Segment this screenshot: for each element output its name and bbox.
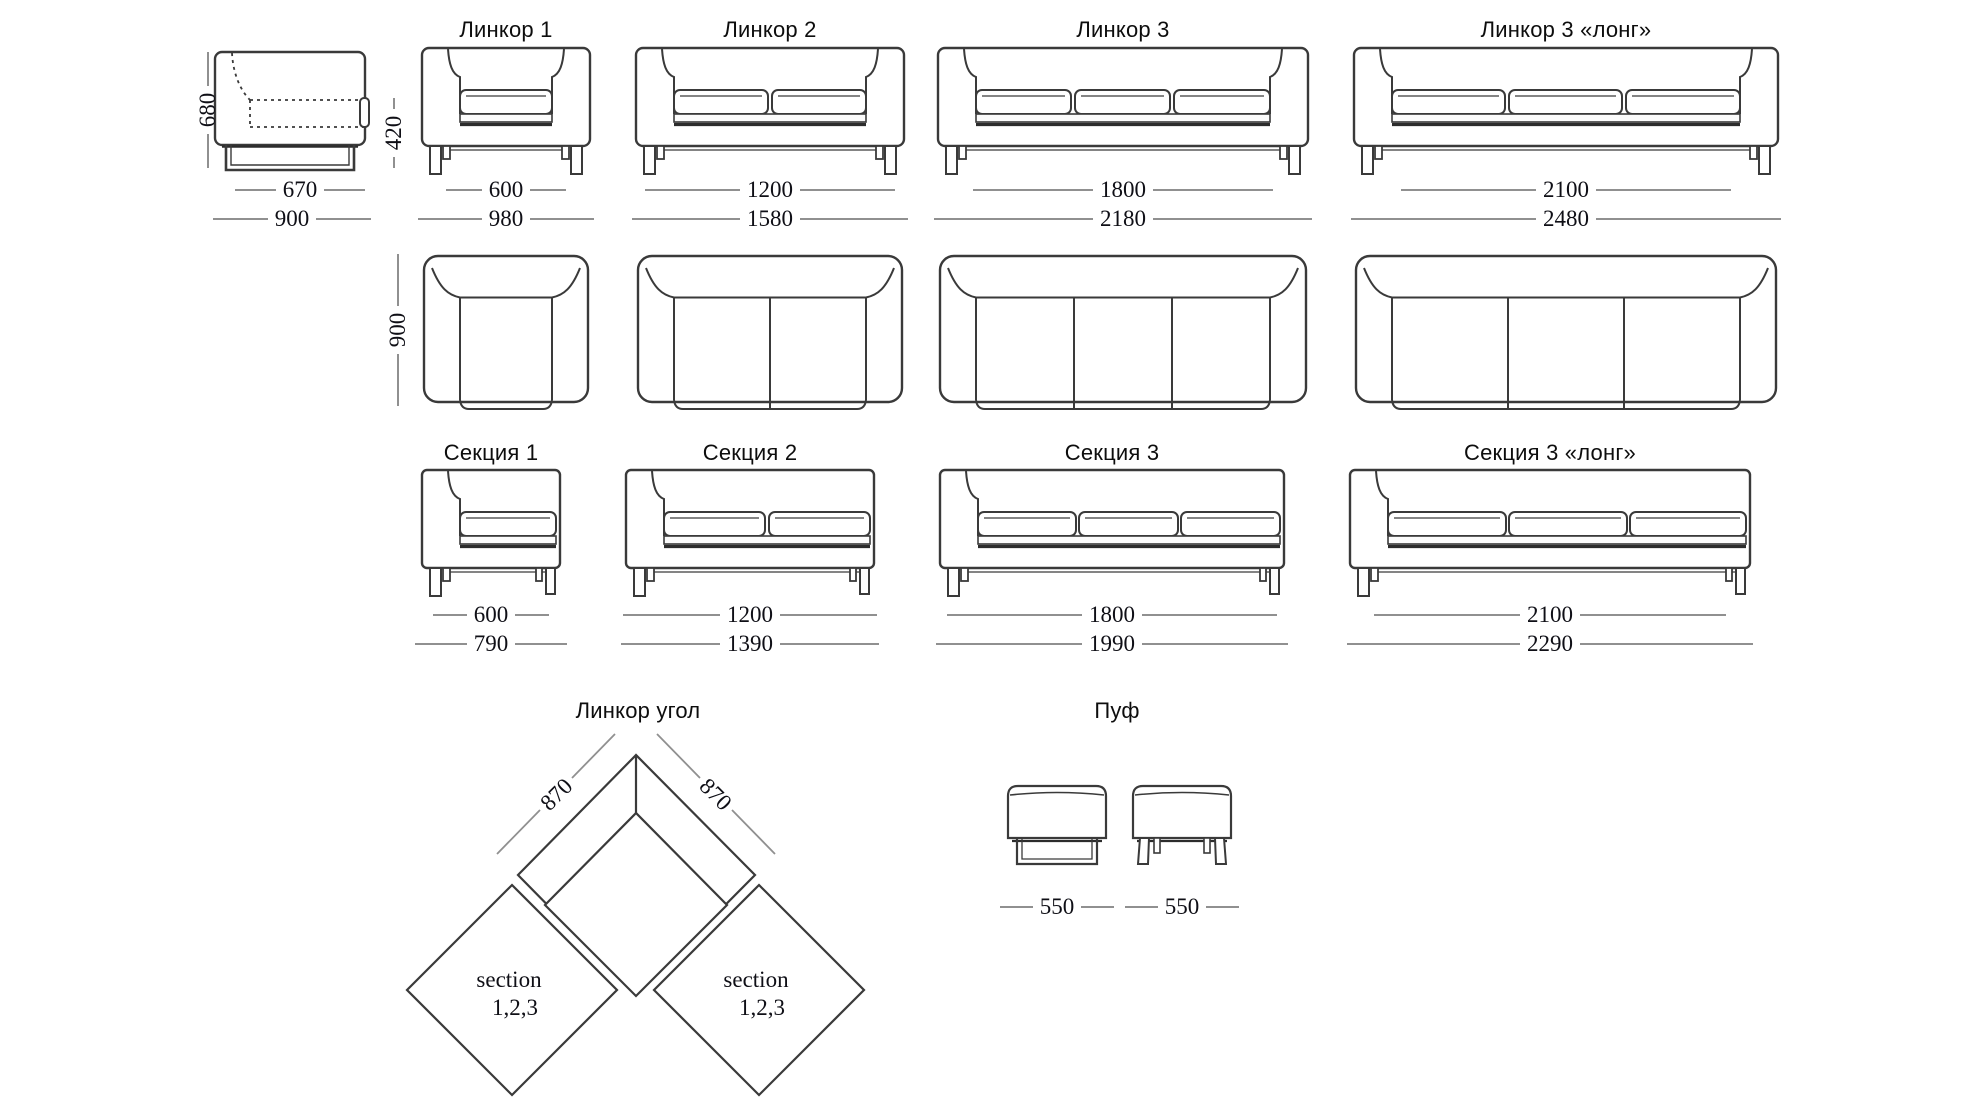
dim-section-3-full-width: 1990 <box>936 631 1288 657</box>
dim-section-2-full-width: 1390 <box>621 631 879 657</box>
corner-dim-line-left <box>572 734 615 778</box>
sofa-front-linkor-3-long <box>1352 46 1780 178</box>
corner-section-left-numbers: 1,2,3 <box>492 995 538 1020</box>
corner-dim-left-value: 870 <box>535 773 577 815</box>
dim-section-3-long-full-width: 2290 <box>1347 631 1753 657</box>
sofa-front-linkor-1 <box>420 46 592 178</box>
dim-seat-height-value: 420 <box>381 109 407 158</box>
dim-linkor-3-long-full-width: 2480 <box>1351 206 1781 232</box>
corner-dim-line-right <box>657 734 700 778</box>
dim-seat-height: 420 <box>381 98 407 168</box>
dim-top-view-depth-value: 900 <box>385 306 411 355</box>
sofa-title-linkor-3: Линкор 3 <box>953 18 1293 42</box>
dim-section-3-width: 1800 <box>947 602 1277 628</box>
dim-linkor-3-long-width: 2100 <box>1401 177 1731 203</box>
dim-section-1-full-width: 790 <box>415 631 567 657</box>
top-view-linkor-3 <box>936 250 1310 416</box>
corner-section-right-numbers: 1,2,3 <box>739 995 785 1020</box>
side-view-drawing <box>210 45 375 177</box>
sofa-title-linkor-2: Линкор 2 <box>600 18 940 42</box>
section-title-2: Секция 2 <box>580 441 920 465</box>
top-view-linkor-1 <box>420 250 592 416</box>
section-title-3-long: Секция 3 «лонг» <box>1380 441 1720 465</box>
top-view-linkor-2 <box>634 250 906 416</box>
dim-linkor-2-width: 1200 <box>645 177 895 203</box>
dim-side-full-depth: 900 <box>213 206 371 232</box>
dim-linkor-2-full-width: 1580 <box>632 206 908 232</box>
sofa-front-linkor-3 <box>936 46 1310 178</box>
corner-drawing: 870 870 section 1,2,3 section 1,2,3 <box>378 728 898 1100</box>
dim-linkor-3-width: 1800 <box>973 177 1273 203</box>
section-front-3 <box>938 468 1286 600</box>
section-front-2 <box>624 468 876 600</box>
dim-linkor-1-full-width: 980 <box>418 206 594 232</box>
dim-pouf-left-width: 550 <box>1000 894 1114 920</box>
pouf-front-view-drawing <box>1127 782 1237 872</box>
sofa-title-linkor-3-long: Линкор 3 «лонг» <box>1396 18 1736 42</box>
dim-linkor-3-full-width: 2180 <box>934 206 1312 232</box>
furniture-dimension-diagram: Линкор 1 Линкор 2 Линкор 3 Линкор 3 «лон… <box>0 0 1976 1100</box>
top-view-linkor-3-long <box>1352 250 1780 416</box>
corner-dim-right-value: 870 <box>695 773 737 815</box>
dim-section-2-width: 1200 <box>623 602 877 628</box>
dim-section-1-width: 600 <box>433 602 549 628</box>
corner-section-left-word: section <box>476 967 542 992</box>
dim-side-depth-value: 670 <box>276 177 325 203</box>
dim-top-view-depth: 900 <box>385 254 411 406</box>
section-title-3: Секция 3 <box>942 441 1282 465</box>
corner-section-right-word: section <box>723 967 789 992</box>
section-front-1 <box>420 468 562 600</box>
dim-linkor-1-width: 600 <box>446 177 566 203</box>
pouf-title: Пуф <box>947 699 1287 723</box>
corner-title: Линкор угол <box>468 699 808 723</box>
dim-side-full-depth-value: 900 <box>268 206 317 232</box>
dim-side-depth: 670 <box>235 177 365 203</box>
dim-side-height: 680 <box>195 52 221 168</box>
pouf-side-view-drawing <box>1002 782 1112 872</box>
dim-side-height-value: 680 <box>195 86 221 135</box>
dim-pouf-right-width: 550 <box>1125 894 1239 920</box>
sofa-front-linkor-2 <box>634 46 906 178</box>
dim-section-3-long-width: 2100 <box>1374 602 1726 628</box>
section-front-3-long <box>1348 468 1752 600</box>
